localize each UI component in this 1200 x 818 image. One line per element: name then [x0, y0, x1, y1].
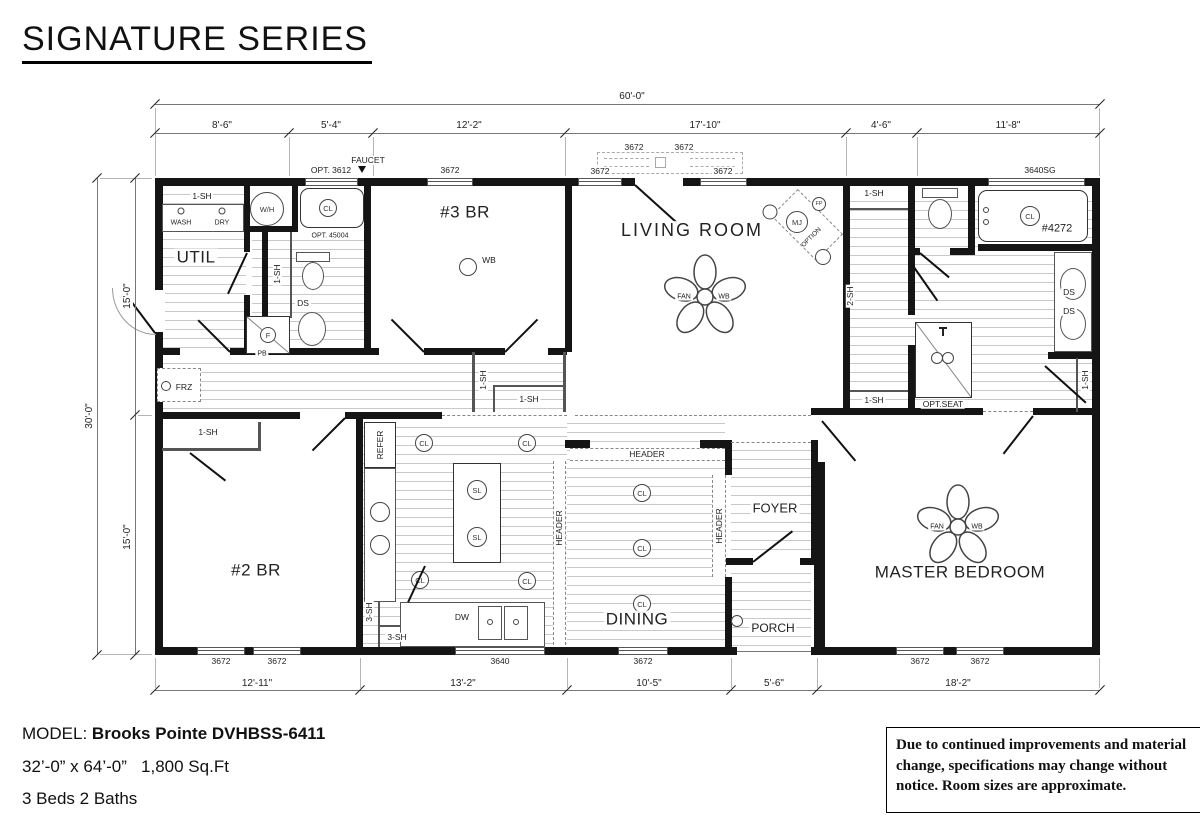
ext-line	[731, 658, 732, 688]
model-prefix: MODEL:	[22, 724, 87, 743]
masterbath-entry-door	[1003, 415, 1034, 454]
tub-model-label: #4272	[1040, 224, 1075, 235]
size-line: 32’-0” x 64’-0” 1,800 Sq.Ft	[22, 757, 229, 777]
ext-line	[917, 137, 918, 176]
fireplace-mj: MJ	[786, 211, 808, 233]
ceiling-light: CL	[633, 539, 651, 557]
header-label: HEADER	[715, 506, 724, 545]
tub-handle	[983, 219, 989, 225]
washer-knob	[178, 208, 185, 215]
sink-label: DS	[1061, 307, 1077, 316]
ext-line	[100, 178, 152, 179]
wall	[155, 178, 163, 290]
freezer-knob	[161, 381, 171, 391]
wall	[818, 462, 825, 647]
dim-label: 15'-0"	[123, 281, 133, 310]
window-label: 3640	[489, 657, 512, 666]
wall	[978, 244, 1092, 251]
wall	[364, 186, 371, 352]
dim-line	[155, 690, 1100, 691]
wall	[565, 440, 590, 448]
ceiling-light: CL	[415, 434, 433, 452]
wall	[908, 345, 915, 412]
floorplan-page: { "title": "SIGNATURE SERIES", "dims": {…	[0, 0, 1200, 818]
ceiling-fan	[660, 252, 750, 342]
washer-label: WASH	[169, 220, 194, 227]
ext-line	[138, 415, 152, 416]
dim-label: 10'-5"	[634, 679, 663, 689]
fan-label: FAN	[675, 294, 693, 301]
room-label-foyer: FOYER	[751, 502, 800, 515]
wall	[371, 348, 379, 355]
room-label-master: MASTER BEDROOM	[873, 564, 1047, 581]
toilet-tank	[922, 188, 958, 198]
ext-line	[155, 108, 156, 176]
closet-wall	[493, 385, 495, 412]
wall	[1033, 408, 1092, 415]
br2-door	[312, 417, 346, 451]
closet-wall	[290, 232, 292, 318]
wb-label: WB	[480, 256, 498, 265]
ceiling-light: CL	[633, 484, 651, 502]
window	[988, 178, 1085, 186]
shelf-label: 2-SH	[846, 284, 855, 307]
deck-post	[655, 157, 666, 168]
island-light: SL	[467, 527, 487, 547]
wall	[811, 440, 818, 560]
ceiling-light: CL	[518, 434, 536, 452]
shower-drain: F	[260, 327, 276, 343]
ext-line	[1099, 658, 1100, 688]
ext-line	[567, 658, 568, 688]
front-door	[634, 184, 677, 223]
wall	[155, 348, 180, 355]
fireplace-outlet	[815, 249, 831, 265]
wall	[908, 248, 920, 255]
wall	[244, 232, 250, 252]
shelf-label: 1-SH	[190, 192, 213, 201]
ext-line	[289, 137, 290, 176]
window	[455, 647, 545, 655]
dim-label: 13'-2"	[448, 679, 477, 689]
header-label: HEADER	[555, 508, 564, 547]
dishwasher-label: DW	[453, 613, 471, 622]
page-title: SIGNATURE SERIES	[22, 20, 372, 64]
wall	[725, 558, 753, 565]
option-label: OPT. 45004	[310, 233, 351, 240]
window-label: 3672	[623, 143, 646, 152]
master-door	[821, 420, 856, 461]
window-label: 3672	[969, 657, 992, 666]
wall	[155, 178, 1100, 186]
window-label: 3672	[589, 167, 612, 176]
closet-wall	[850, 390, 908, 392]
pb-label: PB	[255, 351, 268, 358]
window	[578, 178, 622, 186]
beds-baths-line: 3 Beds 2 Baths	[22, 789, 137, 809]
closet-wall	[258, 422, 261, 450]
shower-valve	[942, 327, 944, 336]
sink-label: DS	[295, 299, 311, 308]
window-label: 3672	[909, 657, 932, 666]
window	[427, 178, 473, 186]
wall	[700, 440, 727, 448]
toilet-tank	[296, 252, 330, 262]
ext-line	[565, 137, 566, 176]
dim-line	[135, 178, 136, 655]
door-opening	[635, 178, 683, 186]
dim-line	[97, 178, 98, 655]
br2-closet-door	[189, 452, 226, 481]
wall	[908, 186, 915, 248]
shelf-label: 1-SH	[479, 368, 488, 391]
shelf-label: 3-SH	[365, 600, 374, 623]
wall	[424, 348, 505, 355]
bath-sink	[298, 312, 326, 346]
dim-label: 12'-11"	[240, 679, 274, 689]
dim-line	[155, 133, 1100, 134]
ext-line	[1099, 108, 1100, 176]
ext-line	[817, 658, 818, 688]
shelf-label: 3-SH	[385, 633, 408, 642]
tub-handle	[983, 207, 989, 213]
island-light: SL	[467, 480, 487, 500]
dim-label: 4'-6"	[869, 121, 893, 131]
closet-wall	[1076, 358, 1078, 412]
range-burner	[370, 502, 390, 522]
opt-seat-label: OPT.SEAT	[921, 400, 965, 409]
wall	[811, 408, 843, 415]
dim-label: 5'-6"	[762, 679, 786, 689]
window	[305, 178, 358, 186]
opening-dashed	[575, 415, 811, 416]
window	[197, 647, 245, 655]
window-label: 3672	[210, 657, 233, 666]
window-label: 3672	[632, 657, 655, 666]
kitchen-island	[453, 463, 501, 563]
fireplace-outlet	[763, 205, 778, 220]
porch-light	[731, 615, 743, 627]
window-label: 3640SG	[1022, 166, 1057, 175]
wall	[565, 186, 572, 352]
wall	[725, 577, 732, 647]
disclaimer-box: Due to continued improvements and materi…	[886, 727, 1200, 813]
dim-line	[155, 104, 1100, 105]
room-label-br2: #2 BR	[229, 562, 283, 579]
shelf-label: 1-SH	[196, 428, 219, 437]
sink-label: DS	[1061, 288, 1077, 297]
deck-detail	[604, 158, 649, 159]
freezer-label: FRZ	[174, 383, 195, 392]
toilet-bowl	[302, 262, 324, 290]
tub-drain: CL	[1020, 206, 1040, 226]
shelf-label: 1-SH	[862, 189, 885, 198]
sink-drain	[513, 619, 519, 625]
wall	[1092, 178, 1100, 655]
dim-label: 15'-0"	[123, 522, 133, 551]
br3-door	[391, 319, 425, 353]
wall	[950, 248, 975, 255]
ext-line	[360, 658, 361, 688]
faucet-label: FAUCET	[349, 156, 387, 165]
window	[896, 647, 944, 655]
header-label: HEADER	[627, 450, 666, 459]
range-burner	[370, 535, 390, 555]
dim-label: 12'-2"	[454, 121, 483, 131]
ceiling-fan	[913, 482, 1003, 572]
wall	[356, 412, 363, 655]
room-label-living: LIVING ROOM	[619, 221, 765, 239]
sink-drain	[487, 619, 493, 625]
fan-wb-label: WB	[716, 294, 731, 301]
water-heater: W/H	[250, 192, 284, 226]
wall	[725, 440, 732, 475]
ext-line	[846, 137, 847, 176]
window-label: 3672	[439, 166, 462, 175]
refrigerator-label: REFER	[376, 429, 385, 462]
opening-dashed	[731, 442, 811, 443]
window-label: 3672	[712, 167, 735, 176]
room-label-br3: #3 BR	[438, 204, 492, 221]
ext-line	[100, 654, 152, 655]
room-label-porch: PORCH	[749, 622, 796, 634]
area-value: 1,800 Sq.Ft	[141, 757, 229, 776]
window	[700, 178, 747, 186]
window-label: 3672	[266, 657, 289, 666]
shower-drain	[942, 352, 954, 364]
room-label-util: UTIL	[175, 249, 218, 266]
faucet-marker	[358, 166, 366, 173]
toilet-bowl	[928, 199, 952, 229]
ext-line	[155, 658, 156, 688]
size-value: 32’-0” x 64’-0”	[22, 757, 127, 776]
wall	[155, 412, 300, 419]
window	[253, 647, 301, 655]
porch-railing	[737, 651, 811, 652]
shelf-label: 1-SH	[273, 262, 282, 285]
wire-box	[459, 258, 477, 276]
room-label-dining: DINING	[604, 611, 671, 628]
closet-wall	[472, 352, 475, 412]
closet-wall	[850, 208, 908, 210]
opening-dashed	[442, 415, 567, 416]
tub-drain: CL	[319, 199, 337, 217]
dim-label: 5'-4"	[319, 121, 343, 131]
closet-wall	[162, 448, 261, 451]
washer-dryer	[162, 204, 244, 232]
dim-overall-height: 30'-0"	[85, 401, 95, 430]
shelf-label: 1-SH	[1081, 368, 1090, 391]
window-label: OPT. 3612	[309, 166, 353, 175]
fan-label: FAN	[928, 524, 946, 531]
dryer-label: DRY	[213, 220, 232, 227]
window-label: 3672	[673, 143, 696, 152]
dim-overall-width: 60'-0"	[617, 92, 646, 102]
model-name: Brooks Pointe DVHBSS-6411	[92, 724, 325, 743]
dryer-knob	[219, 208, 226, 215]
fireplace-fp: FP	[812, 197, 826, 211]
dim-label: 17'-10"	[687, 121, 722, 131]
ceiling-light: CL	[518, 572, 536, 590]
dim-label: 18'-2"	[943, 679, 972, 689]
wall	[968, 186, 975, 248]
window	[618, 647, 668, 655]
wall	[1048, 352, 1092, 359]
window	[956, 647, 1004, 655]
fan-wb-label: WB	[969, 524, 984, 531]
shelf-label: 1-SH	[862, 396, 885, 405]
dim-label: 8'-6"	[210, 121, 234, 131]
opening-dashed	[983, 411, 1033, 412]
closet-wall	[563, 352, 566, 412]
header-strip	[553, 461, 566, 645]
deck-detail	[690, 158, 735, 159]
model-line: MODEL: Brooks Pointe DVHBSS-6411	[22, 724, 325, 744]
shelf-label: 1-SH	[517, 395, 540, 404]
br3-door	[504, 319, 538, 353]
hall-floor	[163, 355, 565, 412]
wall	[262, 232, 268, 318]
closet-wall	[493, 385, 565, 387]
dim-label: 11'-8"	[994, 121, 1023, 131]
